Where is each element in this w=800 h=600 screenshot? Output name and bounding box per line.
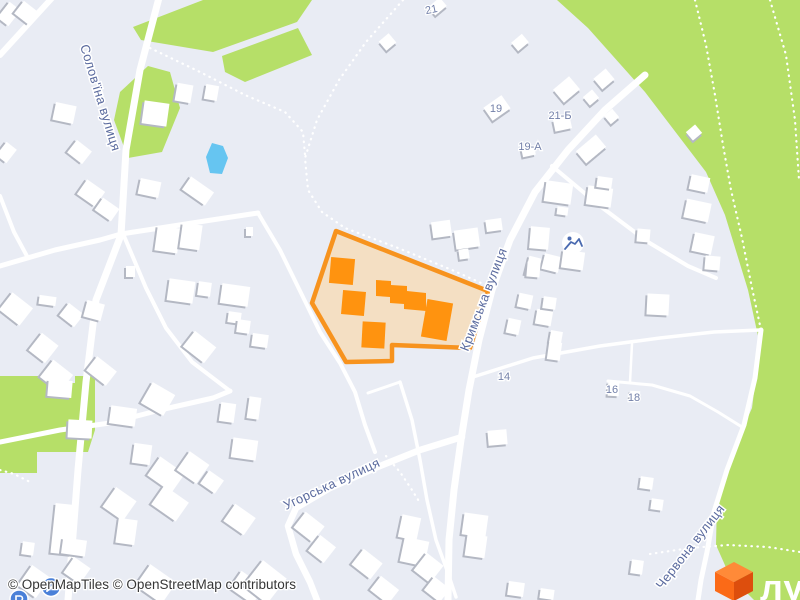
building (197, 281, 212, 297)
building (704, 255, 720, 270)
building (465, 534, 488, 559)
building (175, 83, 194, 104)
house-number: 14 (498, 371, 510, 383)
building (431, 220, 452, 238)
building (646, 293, 669, 315)
house-number: 18 (628, 392, 640, 404)
building (636, 228, 650, 242)
building (167, 278, 196, 303)
building (517, 293, 534, 310)
house-number: 21-Б (548, 110, 571, 122)
building (236, 319, 251, 334)
building (639, 476, 654, 490)
building (231, 437, 259, 460)
building (507, 581, 525, 597)
parcel-building (329, 257, 355, 285)
building (179, 223, 202, 251)
building (458, 248, 469, 259)
parcel-building (361, 321, 385, 348)
building (630, 559, 644, 575)
building (61, 537, 87, 556)
building (246, 227, 253, 236)
building (251, 333, 269, 348)
building (650, 498, 663, 511)
building (204, 84, 219, 101)
house-number: 19 (490, 103, 502, 115)
building (115, 518, 137, 545)
building (454, 227, 480, 249)
building (132, 443, 153, 465)
building (68, 419, 93, 438)
building (544, 180, 574, 205)
building (596, 176, 612, 189)
building (109, 405, 137, 426)
building (691, 232, 715, 255)
building (485, 218, 503, 232)
logo-text: лун (760, 567, 800, 600)
map-canvas[interactable]: Солов'їна вулиця Кримська вулиця Угорськ… (0, 0, 800, 600)
building (526, 261, 540, 277)
parcel-building (341, 290, 366, 316)
playground-icon (562, 232, 584, 254)
building (539, 588, 554, 600)
building (487, 429, 507, 446)
building (219, 402, 236, 423)
building (47, 379, 72, 398)
building (535, 309, 553, 327)
building (556, 206, 568, 215)
building (542, 296, 557, 310)
building (462, 512, 489, 537)
building (154, 226, 180, 254)
building (21, 541, 35, 556)
map-attribution[interactable]: © OpenMapTiles © OpenStreetMap contribut… (8, 577, 296, 592)
building (547, 341, 562, 361)
map-viewport[interactable]: Солов'їна вулиця Кримська вулиця Угорськ… (0, 0, 800, 600)
house-number: 21 (424, 3, 438, 17)
building (529, 226, 550, 250)
building (126, 266, 135, 277)
building (220, 283, 251, 307)
house-number: 16 (606, 384, 618, 396)
house-number: 19-А (518, 141, 542, 153)
building (142, 100, 170, 126)
